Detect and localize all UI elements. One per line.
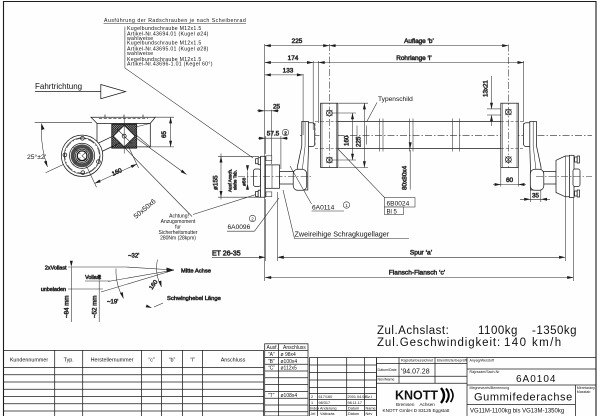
svg-text:KNOTT: KNOTT (395, 389, 438, 403)
svg-text:Sz.I: Sz.I (366, 395, 373, 399)
svg-text:1: 1 (345, 203, 348, 208)
svg-text:225: 225 (356, 136, 363, 147)
svg-text:Jel: Jel (311, 412, 316, 416)
svg-text:“C”: “C” (268, 366, 275, 372)
svg-text:Anyag/Werstoff: Anyag/Werstoff (470, 359, 494, 363)
svg-text:6B0024: 6B0024 (387, 200, 410, 207)
svg-text:unbeladen: unbeladen (41, 287, 66, 293)
svg-text:Zul.Geschwindigkeit:: Zul.Geschwindigkeit: (377, 337, 501, 349)
svg-text:“T”: “T” (268, 393, 275, 399)
svg-text:6A0096: 6A0096 (228, 224, 251, 231)
svg-text:Spur ‘a’: Spur ‘a’ (410, 250, 433, 257)
svg-text:~84 mm: ~84 mm (64, 295, 71, 318)
svg-text:Változás: Változás (320, 412, 335, 416)
svg-text:-1350kg: -1350kg (532, 325, 577, 337)
svg-text:60: 60 (506, 177, 514, 184)
svg-text:ø100x4: ø100x4 (281, 359, 298, 365)
svg-text:“A”: “A” (268, 352, 275, 358)
svg-text:Auflage ‘b’: Auflage ‘b’ (404, 38, 434, 45)
svg-text:Anschluss: Anschluss (283, 345, 306, 351)
svg-text:133: 133 (283, 67, 294, 74)
svg-text:Ausf.: Ausf. (267, 345, 278, 351)
svg-text:2001.04.04: 2001.04.04 (348, 395, 367, 399)
svg-text:Datum: Datum (348, 407, 359, 411)
svg-text:174: 174 (288, 55, 299, 62)
svg-text:280Nm (28kpm): 280Nm (28kpm) (160, 236, 196, 242)
svg-text:65: 65 (161, 131, 168, 138)
svg-text:Zweireihige Schragkugellager: Zweireihige Schragkugellager (295, 230, 390, 239)
svg-text:6A0114: 6A0114 (312, 205, 335, 212)
svg-text:2: 2 (251, 217, 254, 222)
svg-text:Név/Name: Név/Name (378, 378, 395, 382)
svg-text:Anderung: Anderung (320, 407, 336, 411)
svg-text:2xVollast: 2xVollast (45, 265, 67, 271)
svg-text:98.11.17: 98.11.17 (348, 401, 363, 405)
svg-text:Anschluss: Anschluss (221, 358, 246, 364)
svg-text:ø 98x4: ø 98x4 (281, 352, 297, 358)
svg-text:'94.07.28: '94.07.28 (401, 369, 430, 376)
svg-text:ø112x5: ø112x5 (281, 366, 298, 372)
svg-text:57.5: 57.5 (267, 131, 280, 138)
svg-text:“c”: “c” (148, 358, 154, 364)
svg-text:Név: Név (366, 412, 373, 416)
svg-text:Typ.: Typ. (64, 358, 74, 364)
svg-text:25: 25 (273, 103, 281, 110)
svg-text:Fahrtrichtung: Fahrtrichtung (35, 82, 82, 91)
svg-text:225: 225 (292, 38, 303, 45)
svg-text:Typenschild: Typenschild (378, 96, 413, 103)
svg-text:98/317: 98/317 (319, 401, 331, 405)
svg-text:13x21: 13x21 (483, 80, 490, 97)
svg-text:2: 2 (311, 395, 313, 399)
svg-text:Rajzolta/Gezeichnet: Rajzolta/Gezeichnet (401, 359, 433, 363)
svg-text:617/160: 617/160 (319, 395, 333, 399)
svg-text:ø155: ø155 (213, 175, 220, 190)
svg-text:~32': ~32' (128, 254, 139, 260)
svg-text:25°±2': 25°±2' (27, 153, 46, 161)
svg-text:VG11M-1100kg bis VG13M-1350k: VG11M-1100kg bis VG13M-1350kg (470, 409, 564, 415)
svg-text:Ellenőrizte/Geprüft: Ellenőrizte/Geprüft (437, 359, 467, 363)
svg-text:Schwinghebel Länge: Schwinghebel Länge (167, 296, 221, 302)
svg-text:ø108x4: ø108x4 (281, 393, 298, 399)
svg-text:1: 1 (311, 401, 313, 405)
svg-text:140 km/h: 140 km/h (504, 337, 563, 349)
svg-text:35: 35 (532, 192, 539, 199)
svg-text:Mitte Achse: Mitte Achse (181, 268, 211, 274)
svg-text:“B”: “B” (268, 359, 275, 365)
svg-text:Masstab: Masstab (577, 390, 591, 394)
svg-text:6A0104: 6A0104 (516, 374, 556, 385)
svg-text:~52 mm: ~52 mm (92, 295, 99, 318)
svg-text:“b”: “b” (169, 358, 176, 364)
svg-text:Kundennummer: Kundennummer (10, 358, 49, 364)
svg-text:Bl 5: Bl 5 (387, 209, 398, 215)
svg-text:ET 26-35: ET 26-35 (212, 250, 241, 257)
svg-text:~19': ~19' (107, 300, 118, 306)
svg-text:Name: Name (366, 407, 376, 411)
svg-text:Bremsen Achsen: Bremsen Achsen (396, 402, 435, 407)
svg-text:1100kg: 1100kg (478, 325, 518, 337)
svg-text:Rohrlange ‘l’: Rohrlange ‘l’ (396, 55, 432, 62)
svg-text:ø56: ø56 (242, 177, 248, 186)
svg-text:Dátum/Date: Dátum/Date (378, 368, 397, 372)
svg-text:Index: Index (310, 407, 319, 411)
svg-text:Dátum: Dátum (348, 412, 359, 416)
svg-text:Flansch-Flansch ‘c’: Flansch-Flansch ‘c’ (389, 270, 446, 277)
svg-text:siehe Tab.: siehe Tab. (233, 170, 238, 190)
svg-text:“l”: “l” (190, 358, 195, 364)
svg-text:Gummifederachse: Gummifederachse (474, 392, 573, 404)
svg-text:Rajzszám/Sach-Nr: Rajzszám/Sach-Nr (470, 370, 501, 374)
svg-text:Zul.Achslast:: Zul.Achslast: (377, 325, 449, 337)
svg-text:Megnevezés/Benennung: Megnevezés/Benennung (470, 386, 510, 390)
svg-text:Herstellernummer: Herstellernummer (91, 358, 134, 364)
svg-text:80x80x4: 80x80x4 (402, 165, 409, 190)
svg-text:160: 160 (344, 135, 351, 146)
svg-text:Ausführung der Radschrauben je: Ausführung der Radschrauben je nach Sche… (104, 18, 246, 24)
svg-text:KNOTT GmbH D 83125 Eggsta: KNOTT GmbH D 83125 Eggstatt (383, 408, 451, 413)
svg-text:Artikel-Nr.43696-1.01 (Kegel 6: Artikel-Nr.43696-1.01 (Kegel 60°) (127, 62, 213, 68)
svg-text:2: 2 (284, 131, 287, 136)
